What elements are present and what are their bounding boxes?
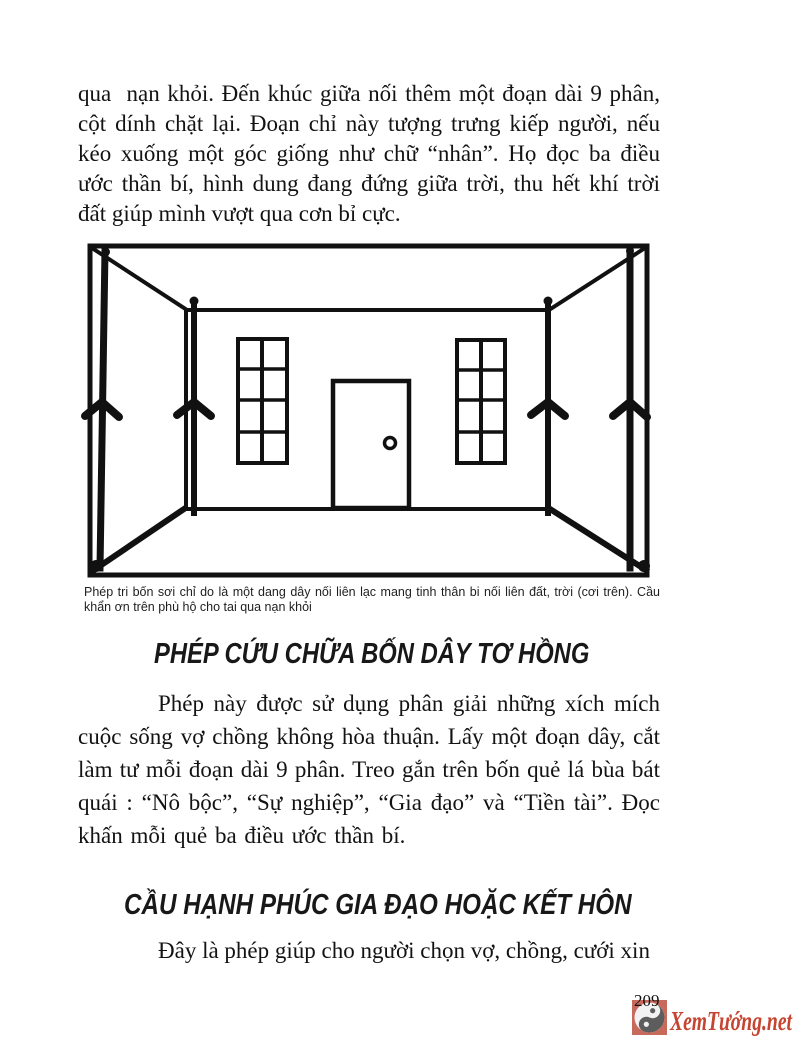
svg-text:XemTướng.net: XemTướng.net <box>669 1006 793 1036</box>
